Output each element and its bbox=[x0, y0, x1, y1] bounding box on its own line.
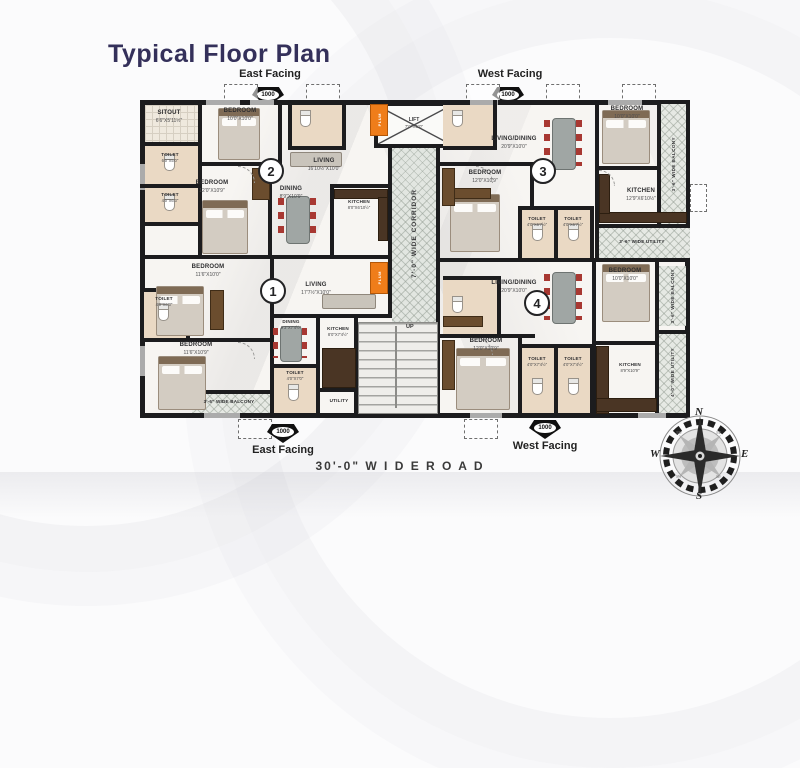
toilet-icon bbox=[288, 386, 299, 401]
room-label-toilet: TOILET4'0"X7'4½" bbox=[556, 356, 590, 367]
window bbox=[250, 100, 274, 105]
room-label-balcony: 3'-6" WIDE BALCONY bbox=[659, 266, 686, 326]
wall bbox=[330, 184, 388, 188]
projection-box bbox=[690, 184, 707, 212]
room-label-dining: DINING9'3"X7'4½" bbox=[266, 319, 316, 330]
room-label-utility: 3'-6" WIDE UTILITY bbox=[599, 239, 685, 245]
room-label-sitout: SITOUT6'6"X5'11½" bbox=[142, 110, 196, 124]
facing-label-bottom-west: West Facing bbox=[490, 440, 600, 452]
toilet-icon bbox=[452, 298, 463, 313]
bed-icon bbox=[202, 200, 248, 254]
window bbox=[470, 413, 502, 418]
room-label-bedroom: BEDROOM12'0"X10'9" bbox=[440, 338, 532, 352]
corridor-label: 7'-0" WIDE CORRIDOR bbox=[392, 158, 436, 308]
facing-marker-icon: 1000 bbox=[529, 420, 561, 439]
dining-chairs-icon bbox=[576, 120, 582, 166]
room-label-bedroom: BEDROOM11'6"X10'9" bbox=[142, 342, 250, 356]
projection-box bbox=[238, 419, 272, 439]
toilet-icon bbox=[532, 226, 543, 241]
wall bbox=[599, 166, 657, 170]
room-label-living-dining: LIVING/DINING20'9"X10'0" bbox=[468, 136, 560, 150]
room-label-toilet: TOILET4'0"X6'3" bbox=[142, 296, 186, 307]
compass-rose-icon bbox=[656, 412, 744, 500]
stairs-up-label: UP bbox=[406, 324, 414, 330]
room-label-living: LIVING17'7½"X10'0" bbox=[278, 282, 354, 296]
dining-table-icon bbox=[286, 196, 310, 244]
compass-se-label: SE bbox=[716, 474, 720, 479]
room-label-kitchen: KITCHEN8'0"X6'10½" bbox=[332, 199, 386, 210]
facing-label-top-east: East Facing bbox=[215, 68, 325, 80]
wall bbox=[590, 210, 594, 258]
room-label-toilet: TOILET4'0"X7'4½" bbox=[520, 356, 554, 367]
room-label-living-dining: LIVING/DINING20'9"X10'0" bbox=[468, 280, 560, 294]
toilet-icon bbox=[300, 112, 311, 127]
wall bbox=[274, 314, 388, 318]
facing-marker-icon: 1000 bbox=[267, 424, 299, 443]
room-label-bedroom: BEDROOM10'0"X10'0" bbox=[200, 108, 280, 122]
unit-number-4: 4 bbox=[524, 290, 550, 316]
room-label-bedroom: BEDROOM12'0"X10'9" bbox=[168, 180, 256, 194]
wall bbox=[342, 100, 346, 150]
room-label-living: LIVING16'10½"X10'0" bbox=[282, 158, 366, 172]
room-label-bedroom: BEDROOM12'0"X10'9" bbox=[442, 170, 528, 184]
toilet-icon bbox=[568, 226, 579, 241]
toilet-icon bbox=[532, 380, 543, 395]
dining-chairs-icon bbox=[310, 198, 316, 240]
bed-icon bbox=[456, 348, 510, 410]
dining-table-icon bbox=[280, 326, 302, 362]
page-title: Typical Floor Plan bbox=[108, 40, 330, 69]
lift-label: LIFT 7'0"X5'0" bbox=[378, 117, 450, 129]
unit-number-1: 1 bbox=[260, 278, 286, 304]
room-label-kitchen: KITCHEN8'0"X7'4½" bbox=[318, 326, 358, 337]
toilet-icon bbox=[452, 112, 463, 127]
room-label-bedroom: BEDROOM11'6"X10'0" bbox=[152, 264, 264, 278]
toilet-icon bbox=[158, 306, 169, 321]
wall bbox=[140, 222, 198, 226]
dining-chairs-icon bbox=[302, 328, 307, 358]
staircase bbox=[358, 322, 438, 414]
door-swing bbox=[599, 170, 615, 186]
room-label-toilet: TOILET4'0"X6'7½" bbox=[556, 216, 590, 227]
compass-north-label: N bbox=[695, 406, 703, 418]
room-label-utility: 4'-0" WIDE UTILITY bbox=[659, 334, 686, 411]
facing-label-bottom-east: East Facing bbox=[228, 444, 338, 456]
stair-rail bbox=[395, 326, 397, 408]
compass-sw-label: SW bbox=[676, 474, 681, 479]
compass-south-label: S bbox=[696, 490, 702, 502]
facing-label-top-west: West Facing bbox=[455, 68, 565, 80]
projection-box bbox=[464, 419, 498, 439]
window bbox=[206, 100, 240, 105]
room-label-kitchen: KITCHEN8'9"X10'9" bbox=[606, 362, 654, 373]
plumbing-shaft: PLUM bbox=[370, 104, 388, 136]
unit-number-2: 2 bbox=[258, 158, 284, 184]
plumbing-shaft: PLUM bbox=[370, 262, 388, 294]
dining-chairs-icon bbox=[273, 328, 278, 358]
wall bbox=[440, 162, 535, 166]
toilet-icon bbox=[568, 380, 579, 395]
room-label-bedroom: BEDROOM10'0"X10'0" bbox=[594, 268, 656, 282]
room-label-dining: DINING8'9"X10'9" bbox=[268, 186, 314, 200]
compass-east-label: E bbox=[741, 448, 748, 460]
dining-chairs-icon bbox=[278, 198, 284, 240]
unit-number-3: 3 bbox=[530, 158, 556, 184]
wall bbox=[288, 146, 346, 150]
window bbox=[204, 413, 240, 418]
wall bbox=[592, 341, 658, 345]
window bbox=[608, 100, 642, 105]
compass-nw-label: NW bbox=[676, 430, 682, 435]
wall bbox=[320, 388, 358, 392]
wardrobe-icon bbox=[210, 290, 224, 330]
room-label-utility: UTILITY bbox=[318, 398, 360, 404]
wall bbox=[140, 255, 392, 259]
compass-west-label: W bbox=[650, 448, 660, 460]
kitchen-counter bbox=[596, 398, 657, 412]
room-label-balcony: 3'-6" WIDE BALCONY bbox=[661, 108, 685, 220]
bed-icon bbox=[450, 194, 500, 252]
room-label-bedroom: BEDROOM10'0"X10'0" bbox=[597, 106, 657, 120]
sofa-icon bbox=[322, 294, 376, 309]
floor-plan: LIFT 7'0"X5'0" 7'-0" WIDE CORRIDOR UP PL… bbox=[140, 100, 690, 418]
compass-ne-label: NE bbox=[716, 430, 721, 435]
dining-chairs-icon bbox=[576, 274, 582, 320]
room-label-toilet: TOILET4'0"X7'0" bbox=[276, 370, 314, 381]
wall bbox=[440, 258, 690, 262]
room-label-balcony: 3'-6" WIDE BALCONY bbox=[188, 399, 270, 405]
tv-unit-icon bbox=[443, 316, 483, 327]
room-label-toilet: TOILET6'0"X5'0" bbox=[144, 152, 196, 163]
kitchen-counter bbox=[322, 348, 356, 388]
room-label-toilet: TOILET4'0"X6'7½" bbox=[520, 216, 554, 227]
